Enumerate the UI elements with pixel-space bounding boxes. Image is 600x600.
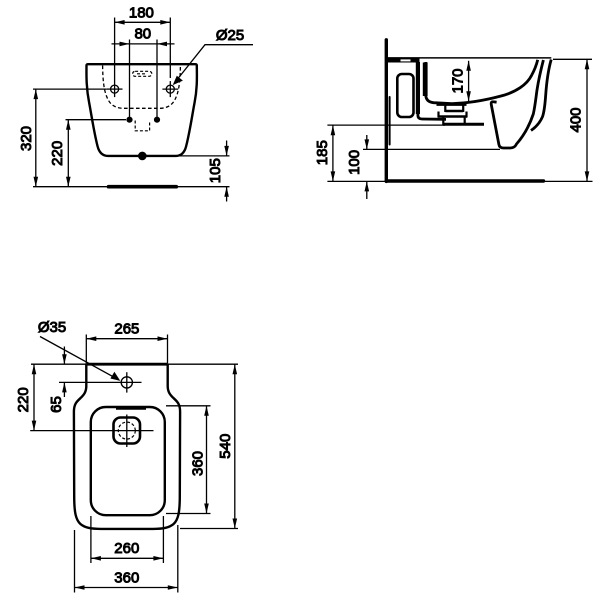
svg-text:360: 360 [114, 569, 139, 586]
svg-text:400: 400 [568, 107, 585, 132]
svg-text:260: 260 [114, 540, 139, 557]
svg-text:220: 220 [49, 141, 66, 166]
svg-text:Ø35: Ø35 [38, 319, 66, 336]
svg-text:80: 80 [134, 26, 151, 43]
svg-text:360: 360 [189, 451, 206, 476]
svg-text:540: 540 [217, 434, 234, 459]
svg-text:265: 265 [114, 321, 139, 338]
svg-text:185: 185 [314, 140, 331, 165]
svg-text:100: 100 [346, 150, 363, 175]
svg-text:170: 170 [449, 68, 466, 93]
svg-text:220: 220 [15, 387, 32, 412]
svg-text:65: 65 [48, 396, 65, 413]
svg-text:Ø25: Ø25 [216, 27, 244, 44]
svg-text:320: 320 [18, 126, 35, 151]
svg-text:180: 180 [129, 4, 154, 21]
svg-text:105: 105 [207, 158, 224, 183]
